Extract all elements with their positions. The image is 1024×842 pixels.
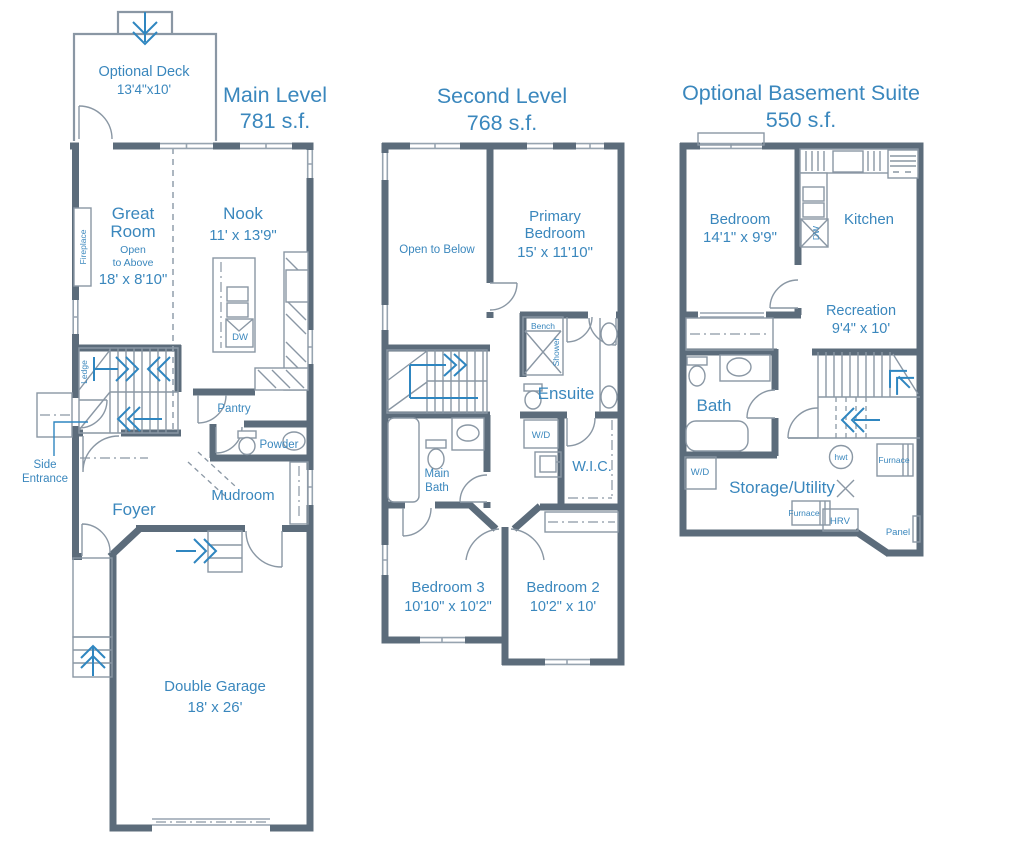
basement-bedroom-door-arc	[770, 280, 798, 308]
second-level-plan: Second Level 768 s.f. Open to Below Prim…	[382, 84, 625, 666]
basement-stairs-down-arrow-icon	[882, 362, 917, 397]
foyer-closet-door-arc	[83, 436, 119, 472]
powder-label: Powder	[260, 439, 299, 451]
basement-windows	[698, 133, 764, 149]
side-entrance-label-2: Entrance	[22, 473, 68, 485]
bedroom3-door-arc	[403, 508, 431, 536]
fireplace-label: Fireplace	[78, 229, 88, 264]
basement-wd-label: W/D	[691, 467, 710, 478]
furnace-label-bottom: Furnace	[788, 508, 819, 518]
great-room-label-2: Room	[110, 222, 155, 241]
main-stairs	[79, 348, 178, 433]
storage-door-arc	[788, 408, 818, 438]
recreation-label: Recreation	[826, 303, 896, 319]
basement-plan: Optional Basement Suite 550 s.f. Bedroom…	[680, 81, 924, 557]
kitchen-cooktop	[833, 151, 863, 172]
deck-door-arc	[79, 106, 112, 139]
bathtub	[686, 421, 748, 451]
great-room-dims: 18' x 8'10"	[99, 271, 168, 288]
garage-dims: 18' x 26'	[188, 699, 243, 716]
range	[286, 270, 308, 302]
foyer-label: Foyer	[112, 500, 156, 519]
ensuite-hall-door-arc	[567, 317, 592, 342]
main-bath-label: Main	[425, 468, 450, 480]
main-level-walls	[70, 143, 314, 832]
basement-bath-label: Bath	[697, 396, 732, 415]
deck-entry-arrow-icon	[133, 12, 157, 44]
ledge-label: Ledge	[79, 360, 89, 384]
deck-label: Optional Deck	[98, 64, 190, 80]
basement-bedroom-dims: 14'1" x 9'9"	[703, 229, 777, 246]
primary-bedroom-label: Primary	[529, 208, 581, 225]
porch	[73, 558, 112, 637]
main-bath-label-2: Bath	[425, 482, 449, 494]
primary-bedroom-label-2: Bedroom	[525, 225, 586, 242]
bedroom3-dims: 10'10" x 10'2"	[404, 599, 492, 615]
great-room-label: Great	[112, 204, 155, 223]
primary-door-arc	[490, 283, 517, 310]
main-level-plan: Main Level 781 s.f. Optional Deck 13'4"x…	[22, 12, 327, 832]
bedroom2-dims: 10'2" x 10'	[530, 599, 597, 615]
basement-area: 550 s.f.	[766, 108, 837, 132]
garage-door-arc	[246, 531, 282, 567]
bathtub	[388, 418, 419, 502]
great-room-note: Open	[120, 244, 146, 256]
main-level-area: 781 s.f.	[240, 109, 311, 133]
kitchen-area	[213, 252, 308, 390]
furnace-label-right: Furnace	[878, 455, 909, 465]
bedroom-closet	[686, 313, 773, 350]
second-level-area: 768 s.f.	[467, 111, 538, 135]
floor-drain-icon	[837, 480, 854, 497]
second-stairs	[387, 350, 487, 413]
ensuite-sink-2	[601, 386, 617, 408]
panel-label: Panel	[886, 527, 910, 538]
mudroom-label: Mudroom	[211, 487, 274, 504]
basement-title: Optional Basement Suite	[682, 81, 920, 105]
main-bath-door-arc	[460, 475, 487, 502]
basement-kitchen-label: Kitchen	[844, 211, 894, 228]
basement-bedroom-label: Bedroom	[710, 211, 771, 228]
basement-stairs-arrow-icon	[842, 408, 880, 432]
hrv-label: HRV	[830, 516, 851, 527]
wic-label: W.I.C.	[572, 459, 611, 475]
garage-steps	[208, 531, 242, 572]
recreation-dims: 9'4" x 10'	[832, 321, 890, 337]
floor-plan-canvas: Main Level 781 s.f. Optional Deck 13'4"x…	[0, 0, 1024, 842]
bedroom3-label: Bedroom 3	[411, 579, 484, 596]
ensuite-label: Ensuite	[538, 384, 595, 403]
ensuite-sink-1	[601, 323, 617, 345]
great-room-note-2: to Above	[113, 257, 154, 269]
second-level-title: Second Level	[437, 84, 567, 108]
garage-steps-arrow-icon	[176, 539, 216, 563]
basement-dw-label: DW	[811, 226, 821, 240]
bedroom2-label: Bedroom 2	[526, 579, 599, 596]
pantry-label: Pantry	[217, 403, 250, 415]
garage-label: Double Garage	[164, 678, 266, 695]
floor-plan-page: Main Level 781 s.f. Optional Deck 13'4"x…	[0, 0, 1024, 842]
island-sink	[227, 287, 248, 301]
toilet-tank	[426, 440, 446, 448]
bath-sink	[727, 358, 751, 376]
wd-label: W/D	[532, 430, 551, 441]
fridge	[888, 150, 918, 178]
toilet-tank	[687, 357, 707, 365]
shower-label: Shower	[551, 337, 561, 366]
wic-door-arc	[567, 418, 595, 446]
toilet-bowl	[239, 438, 255, 455]
front-door-arc	[82, 524, 110, 556]
nook-label: Nook	[223, 204, 263, 223]
bath-sink	[457, 425, 479, 441]
island-sink-2	[227, 303, 248, 317]
side-entrance-label: Side	[33, 459, 56, 471]
basement-stairs	[788, 352, 920, 438]
kitchen-sink-2	[803, 203, 824, 217]
main-level-title: Main Level	[223, 83, 327, 107]
garage-entry	[176, 531, 282, 572]
toilet-bowl	[689, 366, 705, 386]
linen-box-inner	[540, 456, 556, 472]
kitchen-sink	[803, 187, 824, 201]
bench-label: Bench	[531, 321, 555, 331]
primary-bedroom-dims: 15' x 11'10"	[517, 244, 593, 261]
dishwasher-label: DW	[232, 332, 248, 343]
second-stairs-arrow-icon	[410, 354, 478, 398]
nook-dims: 11' x 13'9"	[209, 227, 277, 244]
stairs-down-arrow-icon	[118, 407, 162, 431]
front-porch	[73, 558, 112, 677]
storage-utility-label: Storage/Utility	[729, 478, 835, 497]
toilet-bowl	[428, 449, 444, 469]
deck-dims: 13'4"x10'	[117, 82, 171, 97]
basement-bath-door-arc	[747, 390, 775, 418]
open-to-below-label: Open to Below	[399, 244, 475, 256]
hwt-label: hwt	[834, 452, 848, 462]
